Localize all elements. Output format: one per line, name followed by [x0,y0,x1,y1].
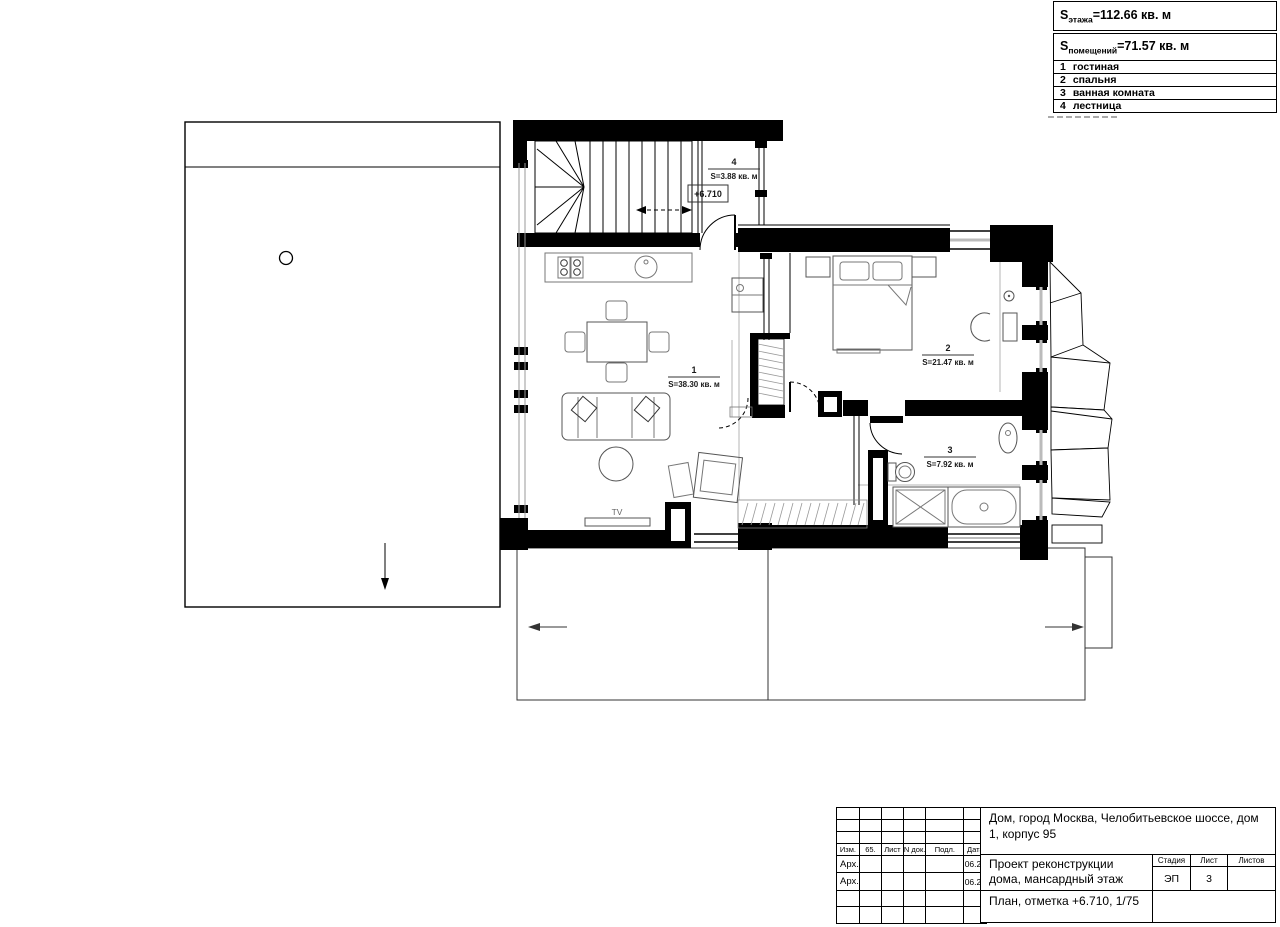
living-furniture [562,278,763,526]
tv-label: TV [612,507,623,517]
room-1-area: S=38.30 кв. м [668,380,720,389]
room-3-area: S=7.92 кв. м [926,460,973,469]
room-3-number: 3 [947,445,952,455]
pillow [840,262,869,280]
revision-grid: Изм. 65. Лист N док. Подл. Дата Арх. 06.… [836,807,987,924]
floor-plan: 1 S=38.30 кв. м 2 S=21.47 кв. м 3 S=7.92… [0,0,1280,927]
revision-header-row: Изм. 65. Лист N док. Подл. Дата [837,844,987,856]
desk [1003,313,1017,341]
nightstand [806,257,830,277]
project-address: Дом, город Москва, Челобитьевское шоссе,… [980,807,1276,855]
legend-room-name: гостиная [1073,61,1119,73]
revision-row: Арх. 06.20 [837,856,987,873]
sheet-title: План, отметка +6.710, 1/75 [980,890,1153,923]
legend-room-number: 1 [1060,61,1066,73]
col-izm: Изм. [837,844,860,856]
dormer-roofs [1048,117,1118,543]
down-arrow-icon [381,578,389,590]
dining-set [565,301,669,382]
room-1-number: 1 [691,365,696,375]
room-labels: 1 S=38.30 кв. м 2 S=21.47 кв. м 3 S=7.92… [612,157,976,517]
pillow [634,396,659,421]
legend-room-name: спальня [1073,74,1117,86]
stage-value: ЭП [1152,866,1191,891]
legend-room-row: 4 лестница [1053,99,1277,113]
legend-room-name: ванная комната [1073,87,1155,99]
legend-room-number: 4 [1060,100,1066,112]
rooms-area-total: Sпомещений=71.57 кв. м [1053,33,1277,61]
room-4-number: 4 [731,157,736,167]
left-arrow-icon [528,623,540,631]
bathroom-fixtures [888,423,1020,527]
floor-area-total: Sэтажа=112.66 кв. м [1053,1,1277,31]
nightstand [912,257,936,277]
revision-row: Арх. 06.20 [837,873,987,891]
washbasin [999,423,1017,453]
coffee-table [599,447,633,481]
kitchen [545,253,692,282]
armchair [693,452,742,502]
elevation-mark: +6.710 [694,189,722,199]
area-legend: Sэтажа=112.66 кв. м Sпомещений=71.57 кв.… [1053,1,1277,113]
chair [971,313,990,341]
project-name: Проект реконструкции дома, мансардный эт… [980,854,1153,891]
sheet-number: 3 [1190,866,1228,891]
col-kol: 65. [859,844,881,856]
room-2-area: S=21.47 кв. м [922,358,974,367]
room-2-number: 2 [945,343,950,353]
roof-planes [517,548,1112,700]
col-podl: Подл. [926,844,964,856]
col-ndok: N док. [903,844,925,856]
pillow [571,396,596,421]
col-list: Лист [881,844,903,856]
legend-room-row: 1 гостиная [1053,60,1277,74]
legend-room-name: лестница [1073,100,1121,112]
tv [585,518,650,526]
legend-room-number: 3 [1060,87,1066,99]
drawing-sheet: 1 S=38.30 кв. м 2 S=21.47 кв. м 3 S=7.92… [0,0,1280,927]
title-block: Изм. 65. Лист N док. Подл. Дата Арх. 06.… [836,807,1276,923]
toilet [888,463,896,481]
legend-room-row: 2 спальня [1053,73,1277,87]
approval-cell [1152,890,1276,923]
pillow [873,262,902,280]
legend-room-number: 2 [1060,74,1066,86]
staircase [535,141,692,233]
right-arrow-icon [1072,623,1084,631]
glass-partitions [519,141,1041,542]
bedroom-furniture [806,256,1017,353]
sink-icon [635,256,657,278]
room-4-area: S=3.88 кв. м [710,172,757,181]
terrace-outline [185,122,500,607]
legend-room-row: 3 ванная комната [1053,86,1277,100]
sheets-total [1227,866,1276,891]
ottoman [668,463,693,498]
